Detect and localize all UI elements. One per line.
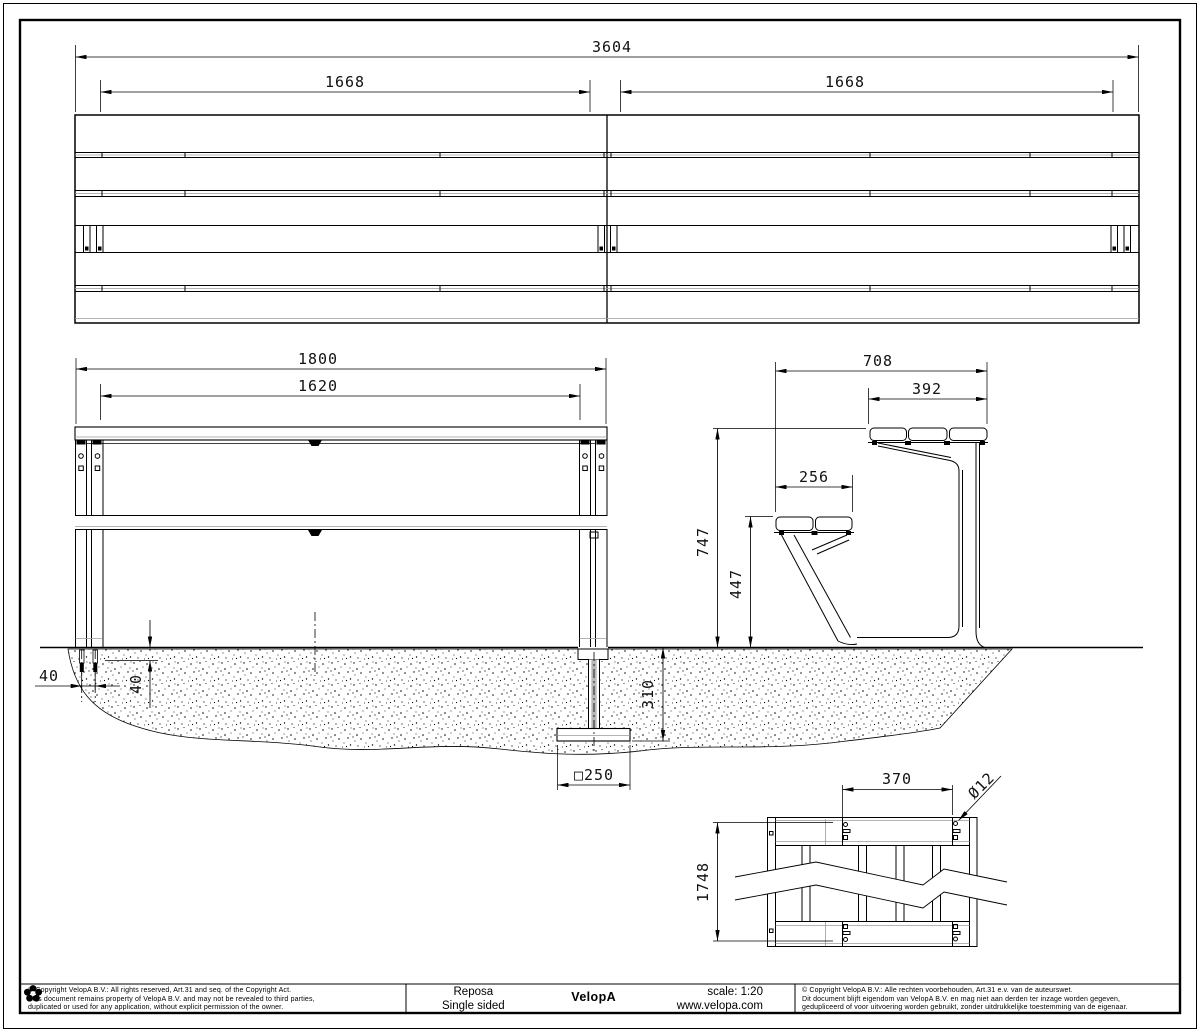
- copyright-nl-line2: Dit document blijft eigendom van VelopA …: [802, 996, 1180, 1005]
- center-clamp-top: [308, 440, 322, 446]
- dim-label-1748: 1748: [694, 862, 712, 902]
- dim-label-1668-left: 1668: [325, 73, 365, 91]
- dim-label-747: 747: [694, 527, 712, 557]
- dim-inner-width: 1620: [101, 377, 581, 420]
- dim-label-310: 310: [639, 679, 657, 709]
- dim-label-1620: 1620: [298, 377, 338, 395]
- dim-seat-height: 447: [727, 517, 773, 648]
- velopa-flower-icon: [20, 984, 46, 1003]
- dim-label-392: 392: [912, 380, 942, 398]
- scale-block: scale: 1:20 www.velopa.com: [677, 985, 763, 1013]
- title-block: © Copyright VelopA B.V.: All rights rese…: [20, 984, 1180, 1013]
- single-bench-side-view: 708 392 256 747 447: [694, 352, 988, 648]
- dim-label-plate: □250: [574, 766, 614, 784]
- copyright-en-line1: © Copyright VelopA B.V.: All rights rese…: [28, 987, 406, 996]
- dim-back-width: 392: [869, 380, 988, 424]
- dim-module-width: 1800: [76, 350, 606, 424]
- dim-label-256: 256: [799, 468, 829, 486]
- seat-plank-edge: [75, 427, 607, 440]
- dim-hole-dia: Ø12: [959, 768, 1002, 820]
- dim-label-3604: 3604: [592, 38, 632, 56]
- dim-label-40v: 40: [127, 674, 145, 694]
- drawing-canvas: 3604 1668 1668: [0, 0, 1200, 1033]
- excavation-hatch: [68, 649, 1012, 754]
- copyright-notice-nl: © Copyright VelopA B.V.: Alle rechten vo…: [795, 984, 1180, 1013]
- double-bench-front-elevation: 3604 1668 1668: [75, 38, 1139, 323]
- dim-left-span: 1668: [101, 73, 591, 112]
- copyright-en-line3: duplicated or used for any application, …: [28, 1004, 406, 1013]
- dim-label-dia12: Ø12: [964, 768, 998, 802]
- seat-planks: [774, 517, 854, 535]
- velopa-logo: VelopA: [571, 993, 616, 1004]
- product-variant: Single sided: [442, 999, 505, 1013]
- dim-label-370: 370: [882, 770, 912, 788]
- dim-label-40h: 40: [39, 667, 59, 685]
- website: www.velopa.com: [677, 999, 763, 1013]
- copyright-nl-line3: gedupliceerd of voor uitvoering worden g…: [802, 1004, 1180, 1013]
- copyright-nl-line1: © Copyright VelopA B.V.: Alle rechten vo…: [802, 987, 1180, 996]
- dim-label-447: 447: [727, 569, 745, 599]
- dim-hole-span: 370: [843, 770, 953, 817]
- dim-seat-depth: 256: [776, 468, 853, 512]
- title-block-center: Reposa Single sided VelopA scale: 1:20 w…: [406, 984, 795, 1013]
- technical-drawing-sheet: 3604 1668 1668: [0, 0, 1200, 1033]
- lower-rail: [74, 516, 608, 539]
- brand-name: VelopA: [571, 990, 616, 1004]
- product-name: Reposa: [442, 985, 505, 999]
- dim-label-708: 708: [863, 352, 893, 370]
- frame-plan-view: 370 Ø12 1748: [694, 768, 1007, 946]
- dim-total-length: 3604: [76, 38, 1139, 112]
- copyright-en-line2: This document remains property of VelopA…: [28, 996, 406, 1005]
- dim-label-1668-right: 1668: [825, 73, 865, 91]
- backrest-planks: [868, 428, 988, 445]
- scale-note: scale: 1:20: [677, 985, 763, 999]
- dim-right-span: 1668: [621, 73, 1114, 112]
- product-title: Reposa Single sided: [442, 985, 505, 1013]
- copyright-notice-en: © Copyright VelopA B.V.: All rights rese…: [20, 984, 406, 1013]
- front-view-legs: [76, 440, 608, 647]
- dim-depth-total: 708: [776, 352, 988, 512]
- dim-label-1800: 1800: [298, 350, 338, 368]
